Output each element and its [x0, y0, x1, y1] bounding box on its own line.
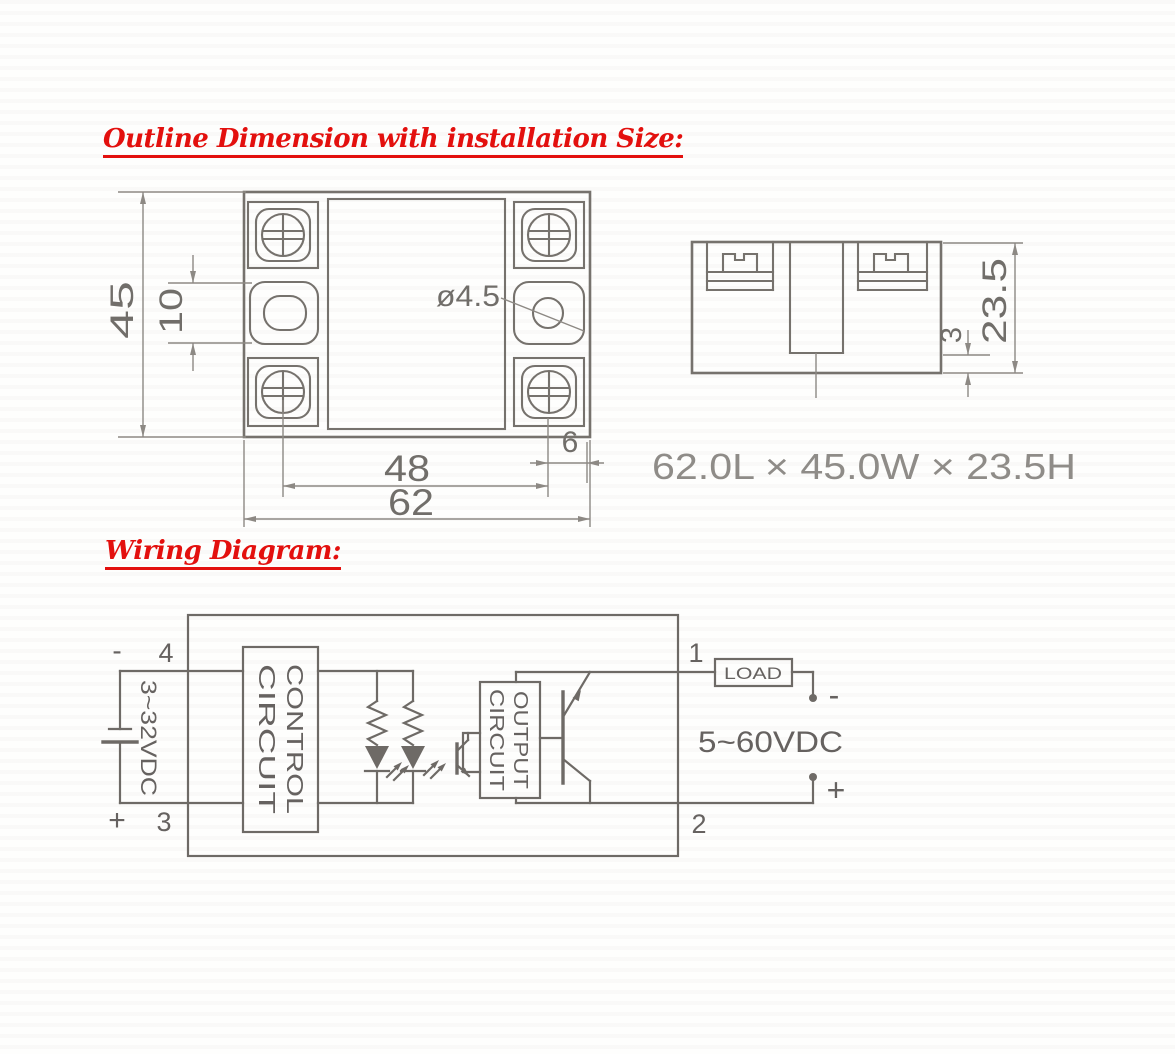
output-box-text-line1: OUTPUT	[509, 691, 531, 789]
output-circuit-box: OUTPUT CIRCUIT	[480, 682, 540, 798]
screw-terminal-top-left	[248, 202, 318, 268]
terminal-1-label: 1	[688, 638, 703, 668]
side-screw-left	[707, 242, 773, 290]
terminal-2-label: 2	[691, 809, 706, 839]
dim-45-label: 45	[104, 281, 140, 339]
terminal-4-label: 4	[158, 638, 173, 668]
load-box: LOAD	[715, 659, 792, 686]
load-label: LOAD	[724, 664, 782, 683]
control-box-text-line2: CIRCUIT	[254, 664, 280, 814]
dim-6-label: 6	[562, 426, 579, 459]
side-screw-right	[858, 242, 927, 290]
terminal-3-label: 3	[156, 807, 171, 837]
outline-dimension-figure: ø4.5 45 10 48	[90, 175, 1105, 535]
dim-10-label: 10	[153, 288, 189, 334]
outline-section-heading: Outline Dimension with installation Size…	[103, 124, 683, 158]
screw-terminal-bottom-right	[514, 358, 584, 426]
dim-62-label: 62	[388, 482, 434, 523]
overall-size-text: 62.0L × 45.0W × 23.5H	[652, 446, 1076, 487]
dim-10: 10	[153, 255, 252, 371]
hole-diameter-label: ø4.5	[436, 280, 500, 313]
side-view-body	[692, 242, 941, 398]
mounting-slot-right	[501, 282, 584, 344]
mounting-slot-left	[250, 282, 318, 344]
input-voltage-label: 3~32VDC	[136, 680, 161, 796]
dim-3-label: 3	[936, 327, 968, 343]
phototransistor	[457, 733, 480, 776]
output-box-text-line2: CIRCUIT	[485, 689, 507, 791]
control-box-text-line1: CONTROL	[282, 664, 308, 814]
wiring-heading-text: Wiring Diagram:	[105, 536, 341, 570]
dim-23-5-label: 23.5	[976, 258, 1014, 344]
control-circuit-box: CONTROL CIRCUIT	[243, 647, 318, 832]
outline-heading-text: Outline Dimension with installation Size…	[103, 124, 683, 158]
output-voltage-label: 5~60VDC	[698, 726, 843, 759]
screw-terminal-top-right	[514, 202, 584, 268]
input-plus-sign: +	[108, 804, 126, 837]
input-wiring	[103, 671, 243, 803]
output-plus-sign: +	[827, 772, 846, 808]
dim-23-5: 23.5	[943, 243, 1023, 373]
input-minus-sign: -	[112, 635, 121, 666]
dim-6: 6	[530, 426, 604, 483]
wiring-diagram-figure: 3~32VDC 4 - 3 + CONTROL CIRCUIT	[95, 605, 860, 870]
plan-view-body	[244, 192, 590, 437]
wiring-section-heading: Wiring Diagram:	[105, 536, 341, 570]
scanned-datasheet-page: Outline Dimension with installation Size…	[0, 0, 1175, 1054]
output-minus-sign: -	[829, 677, 840, 713]
optocoupler-led-branches	[318, 671, 425, 803]
